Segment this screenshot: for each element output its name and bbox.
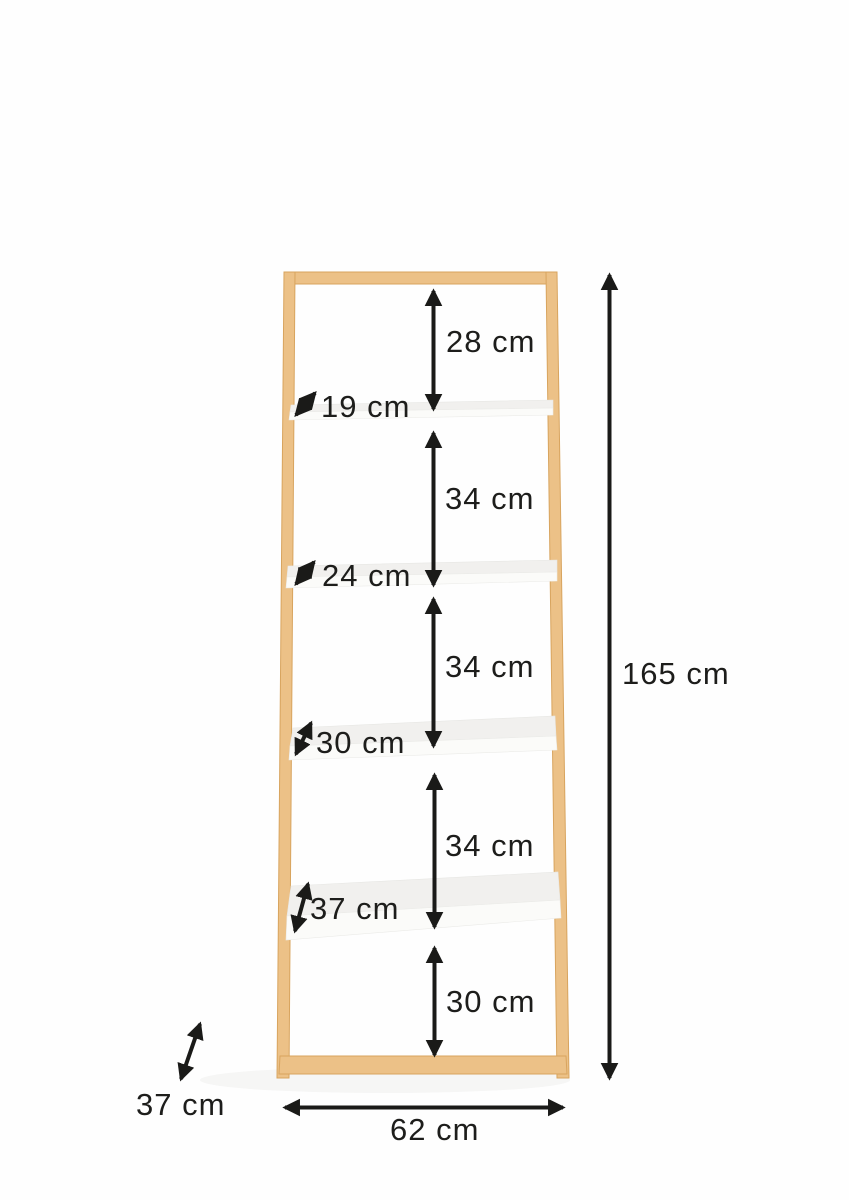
frame-left-leg — [277, 272, 295, 1078]
label-top-gap: 28 cm — [446, 324, 535, 359]
label-total-width: 62 cm — [390, 1112, 479, 1147]
frame-right-leg — [546, 272, 569, 1078]
frame-top-rail — [284, 272, 557, 284]
dim-arrow-total-depth — [181, 1024, 200, 1079]
ladder-shelf-diagram: 28 cm 19 cm 34 cm 24 cm 34 cm 30 cm 34 c… — [0, 0, 849, 1200]
product-dimension-diagram: 28 cm 19 cm 34 cm 24 cm 34 cm 30 cm 34 c… — [0, 0, 849, 1200]
label-bottom-gap: 30 cm — [446, 984, 535, 1019]
label-gap-1-2: 34 cm — [445, 481, 534, 516]
label-shelf3-depth: 30 cm — [316, 725, 405, 760]
label-shelf4-depth: 37 cm — [310, 891, 399, 926]
label-total-depth: 37 cm — [136, 1087, 225, 1122]
frame-bottom-rail — [279, 1056, 567, 1074]
label-shelf2-depth: 24 cm — [322, 558, 411, 593]
label-total-height: 165 cm — [622, 656, 730, 691]
label-shelf1-depth: 19 cm — [321, 389, 410, 424]
label-gap-2-3: 34 cm — [445, 649, 534, 684]
label-gap-3-4: 34 cm — [445, 828, 534, 863]
